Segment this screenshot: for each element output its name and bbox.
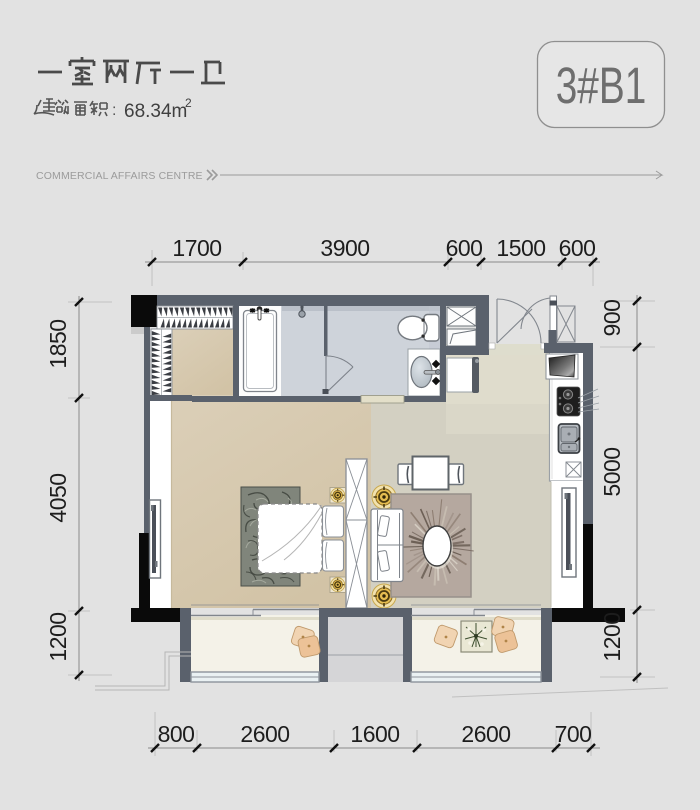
svg-text:1700: 1700 <box>172 235 221 261</box>
svg-text:1500: 1500 <box>496 235 545 261</box>
svg-text:700: 700 <box>555 721 592 747</box>
svg-text:1200: 1200 <box>45 612 71 661</box>
svg-text:900: 900 <box>599 300 625 337</box>
svg-text:4050: 4050 <box>45 473 71 522</box>
svg-text:COMMERCIAL AFFAIRS CENTRE: COMMERCIAL AFFAIRS CENTRE <box>36 170 203 182</box>
svg-text:2600: 2600 <box>240 721 289 747</box>
svg-text:800: 800 <box>158 721 195 747</box>
svg-text:1850: 1850 <box>45 319 71 368</box>
svg-text:2600: 2600 <box>461 721 510 747</box>
svg-text:1600: 1600 <box>350 721 399 747</box>
svg-text:5000: 5000 <box>599 447 625 496</box>
svg-text:1200: 1200 <box>599 612 625 661</box>
svg-text:600: 600 <box>446 235 483 261</box>
svg-text:2: 2 <box>185 96 192 110</box>
svg-text:68.34m: 68.34m <box>124 101 187 122</box>
svg-text:3900: 3900 <box>320 235 369 261</box>
svg-text:600: 600 <box>559 235 596 261</box>
svg-text:3#B1: 3#B1 <box>556 57 647 114</box>
svg-text::: : <box>112 102 116 119</box>
